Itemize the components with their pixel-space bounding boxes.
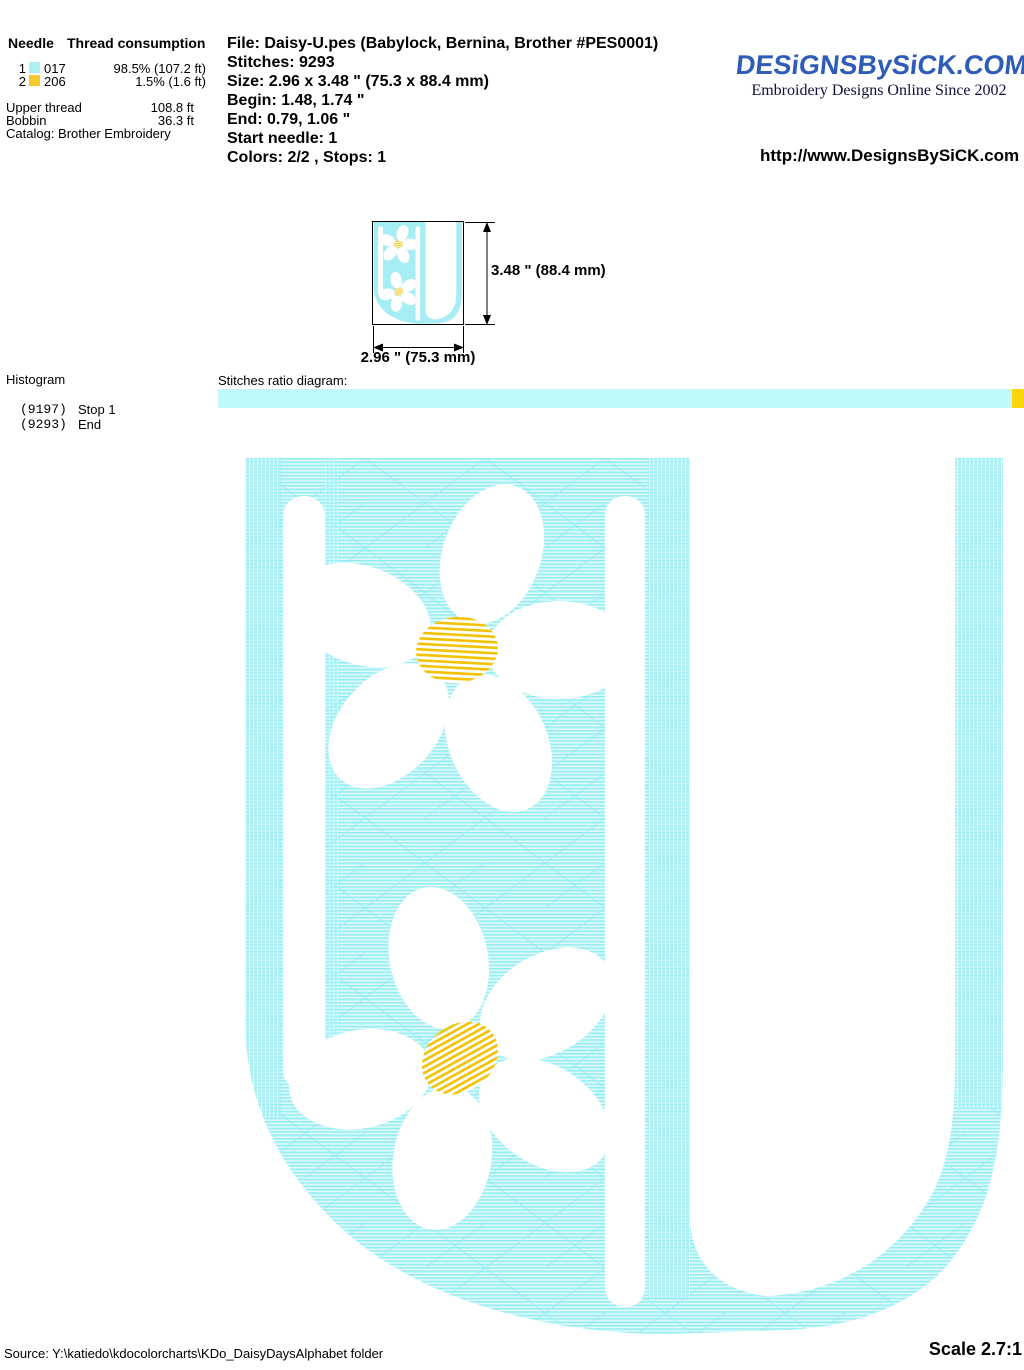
website-url-link[interactable]: http://www.DesignsBySiCK.com: [760, 146, 1019, 166]
start-needle-line: Start needle: 1: [227, 129, 658, 148]
histogram-stitch-count: (9197): [20, 402, 67, 417]
thread-code: 206: [44, 74, 66, 89]
colors-stops-line: Colors: 2/2 , Stops: 1: [227, 148, 658, 167]
catalog-line: Catalog: Brother Embroidery: [6, 126, 171, 141]
file-info-block: File: Daisy-U.pes (Babylock, Bernina, Br…: [227, 34, 658, 167]
stitches-ratio-bar: [218, 389, 1024, 408]
scale-indicator: Scale 2.7:1: [929, 1339, 1022, 1360]
brand-logo: DESiGNSBySiCK.COM Embroidery Designs Onl…: [736, 50, 1022, 100]
needle-color-swatch: [29, 62, 40, 73]
stitches-ratio-label: Stitches ratio diagram:: [218, 373, 347, 388]
histogram-title: Histogram: [6, 372, 65, 387]
needle-number: 2: [10, 74, 26, 89]
file-name-line: File: Daisy-U.pes (Babylock, Bernina, Br…: [227, 34, 658, 53]
stitched-letter-design: [245, 458, 1007, 1335]
size-line: Size: 2.96 x 3.48 " (75.3 x 88.4 mm): [227, 72, 658, 91]
ratio-segment-cyan: [218, 389, 1012, 408]
thread-consumption-header: Thread consumption: [67, 35, 205, 51]
stitch-count-line: Stitches: 9293: [227, 53, 658, 72]
letter-counter-cutout: [690, 458, 955, 1296]
logo-tagline: Embroidery Designs Online Since 2002: [736, 82, 1022, 100]
logo-wordmark: DESiGNSBySiCK.COM: [734, 50, 1023, 81]
end-line: End: 0.79, 1.06 ": [227, 110, 658, 129]
histogram-event-label: Stop 1: [78, 402, 116, 417]
needle-color-swatch: [29, 75, 40, 86]
histogram-event-label: End: [78, 417, 101, 432]
needle-column-header: Needle: [8, 35, 54, 51]
ratio-segment-yellow: [1012, 389, 1024, 408]
width-dimension-label: 2.96 " (75.3 mm): [360, 349, 476, 366]
height-dimension-label: 3.48 " (88.4 mm): [491, 262, 606, 279]
source-path: Source: Y:\katiedo\kdocolorcharts\KDo_Da…: [4, 1346, 383, 1361]
thread-consumption-value: 1.5% (1.6 ft): [90, 74, 206, 89]
begin-line: Begin: 1.48, 1.74 ": [227, 91, 658, 110]
histogram-stitch-count: (9293): [20, 417, 67, 432]
embroidery-report-page: { "thread_info": { "header_needle": "Nee…: [0, 0, 1024, 1370]
